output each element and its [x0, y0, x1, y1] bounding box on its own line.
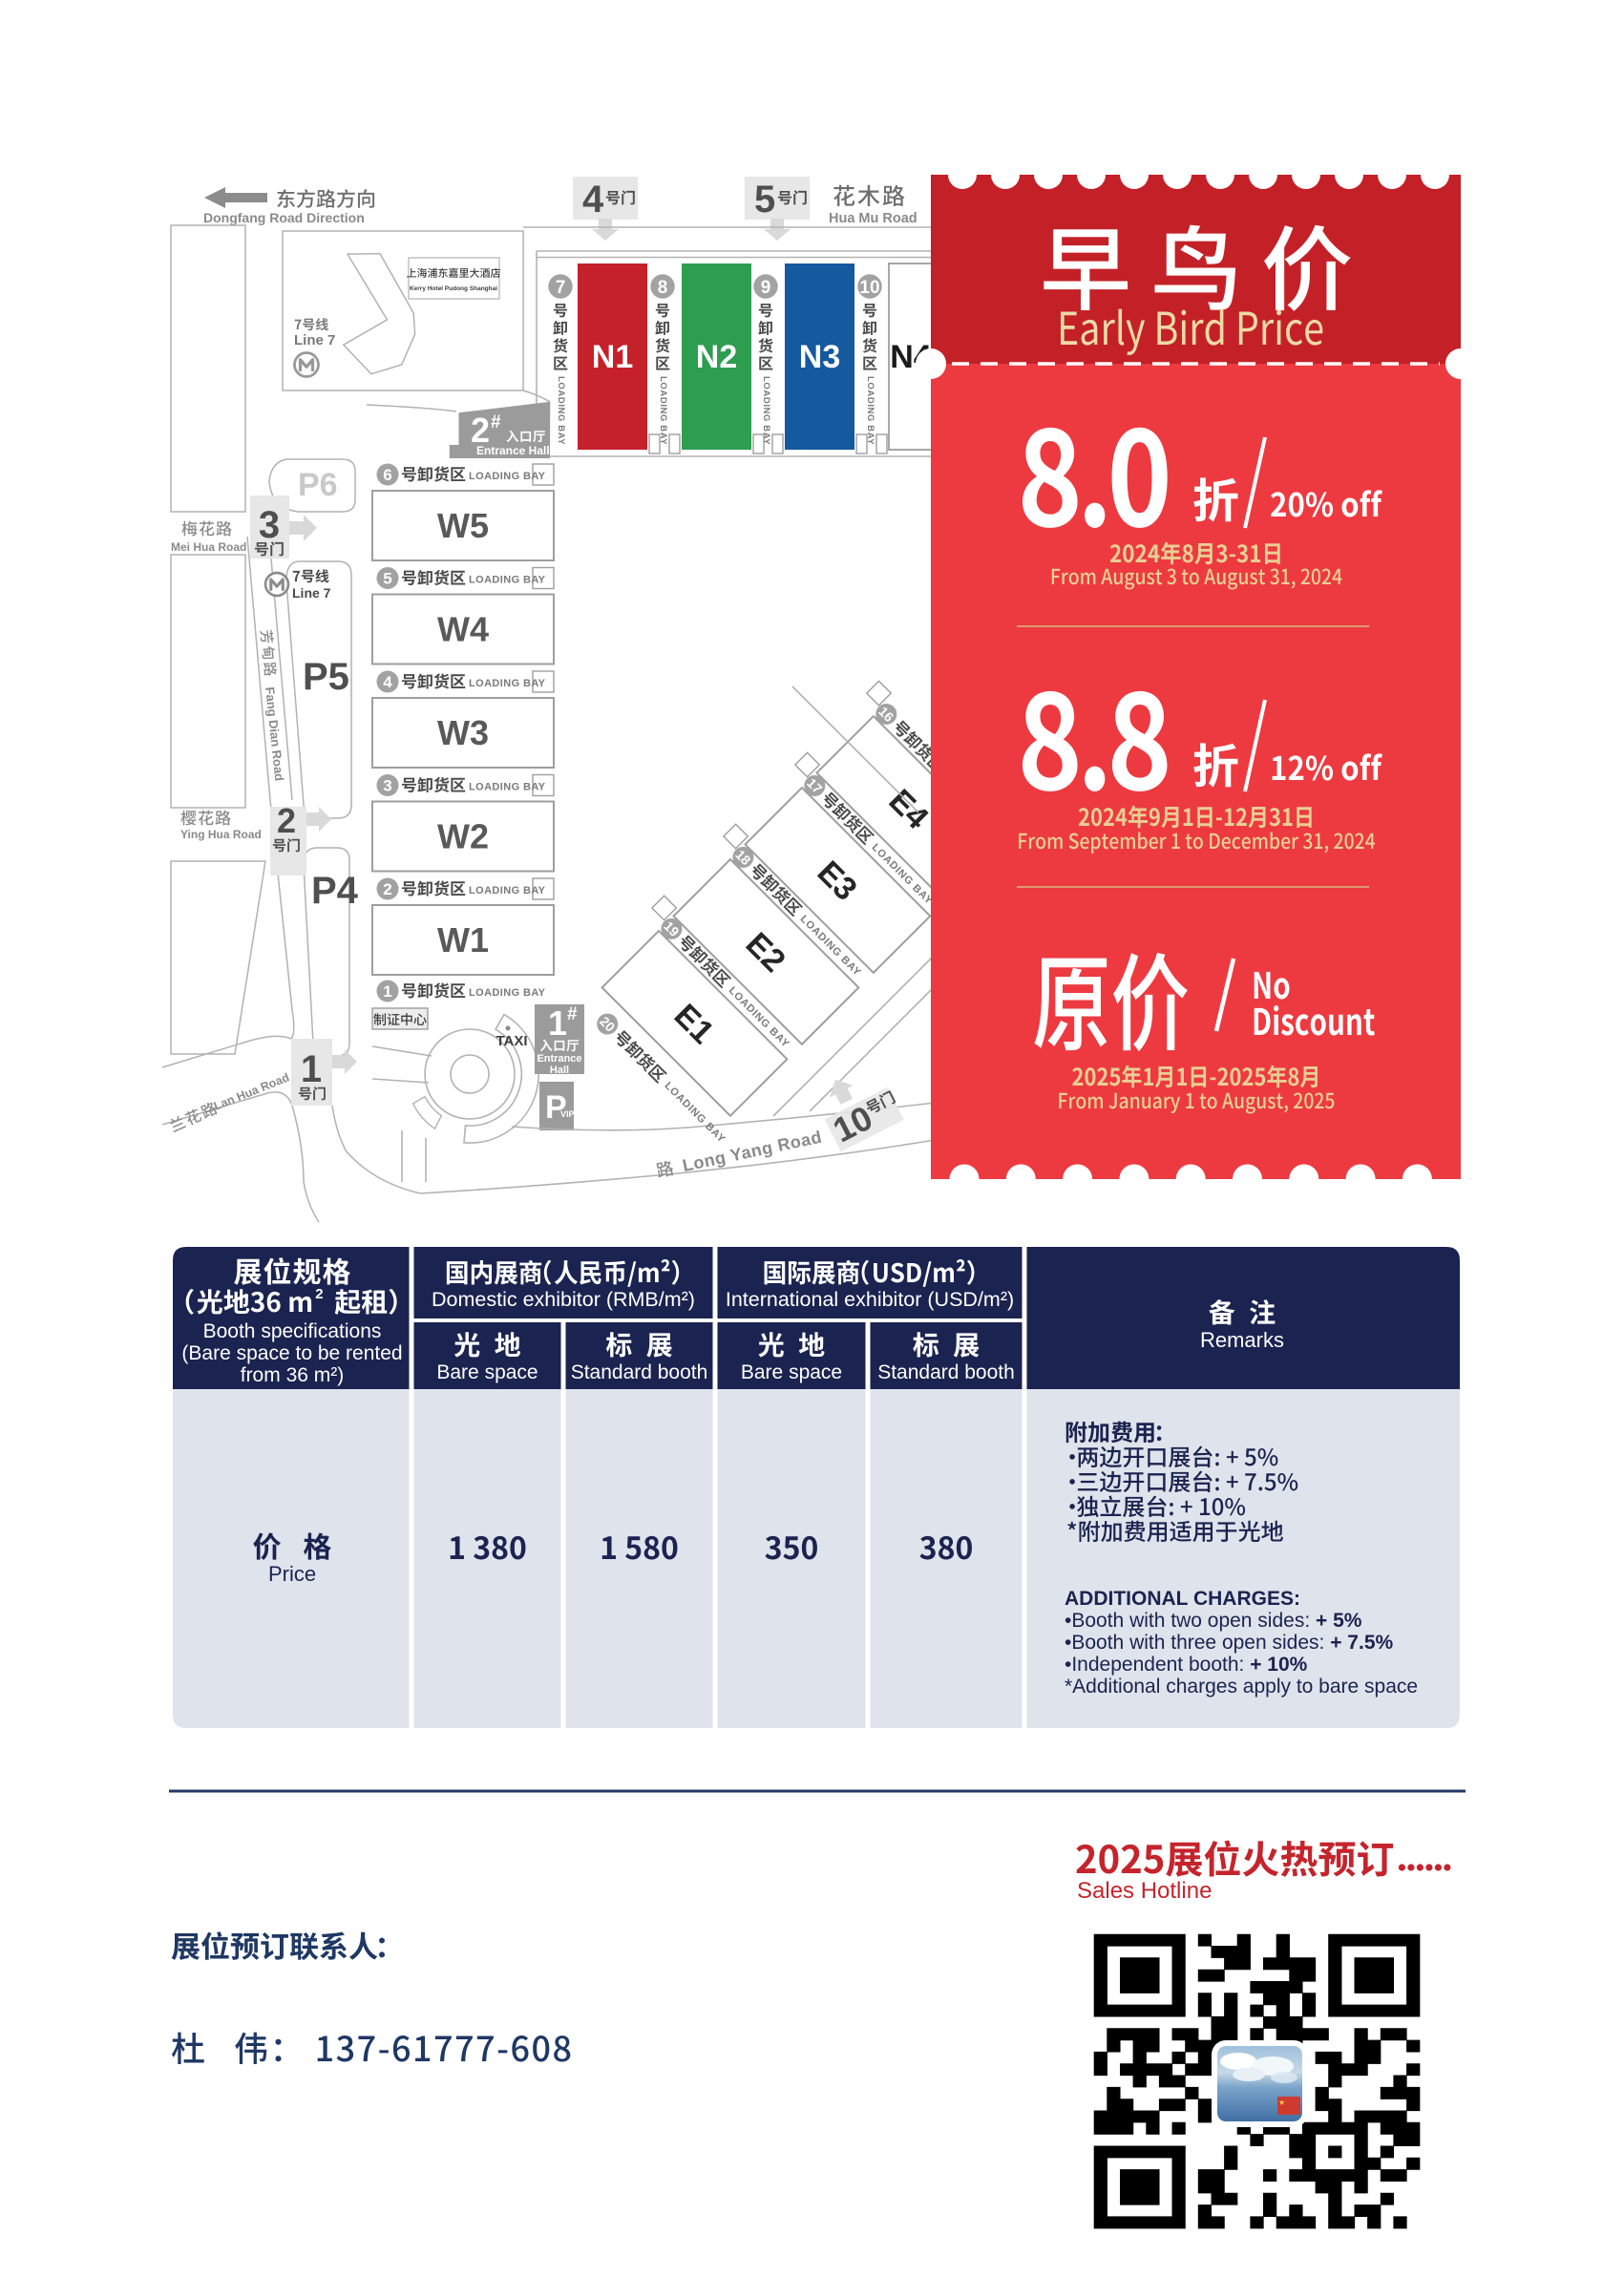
svg-text:#: #: [491, 412, 501, 432]
svg-text:W2: W2: [437, 817, 489, 856]
svg-text:2: 2: [315, 1286, 323, 1302]
svg-text:TAXI: TAXI: [496, 1033, 527, 1049]
svg-text:1: 1: [301, 1048, 322, 1090]
svg-text:7: 7: [556, 278, 566, 298]
svg-text:Kerry Hotel Pudong Shanghai: Kerry Hotel Pudong Shanghai: [410, 285, 497, 292]
svg-text:Sales Hotline: Sales Hotline: [1077, 1878, 1212, 1904]
svg-text:#: #: [567, 1004, 578, 1024]
svg-text:10: 10: [859, 278, 879, 298]
svg-text:9: 9: [761, 278, 771, 298]
svg-text:Price: Price: [268, 1562, 316, 1586]
svg-text:P: P: [545, 1089, 567, 1126]
svg-text:N1: N1: [592, 339, 633, 375]
svg-text:•Independent booth: + 10%: •Independent booth: + 10%: [1065, 1654, 1308, 1676]
svg-text:Hua Mu Road: Hua Mu Road: [829, 211, 917, 226]
svg-text:LOADING BAY: LOADING BAY: [556, 376, 566, 445]
svg-text:W1: W1: [437, 920, 489, 960]
svg-text:LOADING BAY: LOADING BAY: [469, 678, 546, 689]
svg-text:4: 4: [383, 673, 392, 691]
svg-text:Line 7: Line 7: [292, 585, 331, 601]
svg-text:Dongfang Road Direction: Dongfang Road Direction: [203, 210, 365, 225]
svg-text:Ying Hua Road: Ying Hua Road: [180, 828, 262, 841]
svg-text:4: 4: [582, 179, 604, 221]
svg-text:Entrance: Entrance: [537, 1053, 581, 1065]
svg-text:Domestic exhibitor (RMB/m²): Domestic exhibitor (RMB/m²): [432, 1288, 695, 1311]
svg-text:LOADING BAY: LOADING BAY: [761, 376, 771, 445]
svg-text:8: 8: [658, 278, 668, 298]
svg-text:1: 1: [383, 982, 391, 1001]
svg-text:W4: W4: [437, 610, 489, 649]
svg-text:Hall: Hall: [550, 1065, 569, 1076]
svg-text:5: 5: [754, 179, 775, 221]
svg-text:Line 7: Line 7: [294, 332, 335, 348]
svg-text:LOADING BAY: LOADING BAY: [469, 471, 546, 482]
svg-text:LOADING BAY: LOADING BAY: [469, 575, 546, 586]
svg-text:Bare space: Bare space: [741, 1361, 842, 1383]
svg-text:from 36 m²): from 36 m²): [241, 1364, 345, 1386]
svg-text:LOADING BAY: LOADING BAY: [469, 782, 546, 793]
svg-text:N3: N3: [799, 339, 840, 375]
svg-text:Booth specifications: Booth specifications: [203, 1320, 382, 1342]
svg-text:3: 3: [383, 777, 391, 795]
svg-text:Bare space: Bare space: [436, 1361, 538, 1383]
svg-text:LOADING BAY: LOADING BAY: [865, 376, 875, 445]
svg-text:P6: P6: [298, 467, 338, 503]
svg-text:Standard booth: Standard booth: [877, 1361, 1015, 1383]
svg-text:ADDITIONAL CHARGES:: ADDITIONAL CHARGES:: [1065, 1588, 1300, 1610]
svg-text:Remarks: Remarks: [1200, 1328, 1284, 1352]
svg-text:(Bare space to be rented: (Bare space to be rented: [181, 1342, 402, 1364]
svg-text:N2: N2: [696, 339, 737, 375]
svg-text:LOADING BAY: LOADING BAY: [469, 885, 546, 896]
svg-text:Entrance Hall: Entrance Hall: [476, 444, 550, 457]
svg-text:P4: P4: [311, 870, 359, 912]
svg-text:1: 1: [548, 1003, 567, 1043]
svg-text:•Booth with three open sides:: •Booth with three open sides: + 7.5%: [1065, 1632, 1393, 1654]
svg-text:6: 6: [383, 466, 391, 484]
svg-text:•Booth with two open sides: +: •Booth with two open sides: + 5%: [1065, 1610, 1362, 1632]
svg-text:P5: P5: [303, 656, 349, 698]
svg-text:LOADING BAY: LOADING BAY: [469, 987, 546, 999]
svg-text:LOADING BAY: LOADING BAY: [658, 376, 668, 445]
svg-text:2: 2: [383, 880, 391, 898]
svg-text:Mei Hua Road: Mei Hua Road: [171, 540, 246, 554]
svg-text:Standard booth: Standard booth: [571, 1361, 708, 1383]
svg-text:3: 3: [259, 504, 280, 546]
svg-text:*Additional charges apply to b: *Additional charges apply to bare space: [1065, 1676, 1418, 1698]
svg-text:International exhibitor (USD/m: International exhibitor (USD/m²): [726, 1288, 1014, 1311]
svg-text:W5: W5: [437, 506, 489, 545]
svg-text:5: 5: [383, 570, 391, 588]
svg-text:W3: W3: [437, 713, 489, 752]
svg-text:2: 2: [277, 801, 296, 840]
svg-text:VIP: VIP: [560, 1109, 575, 1119]
